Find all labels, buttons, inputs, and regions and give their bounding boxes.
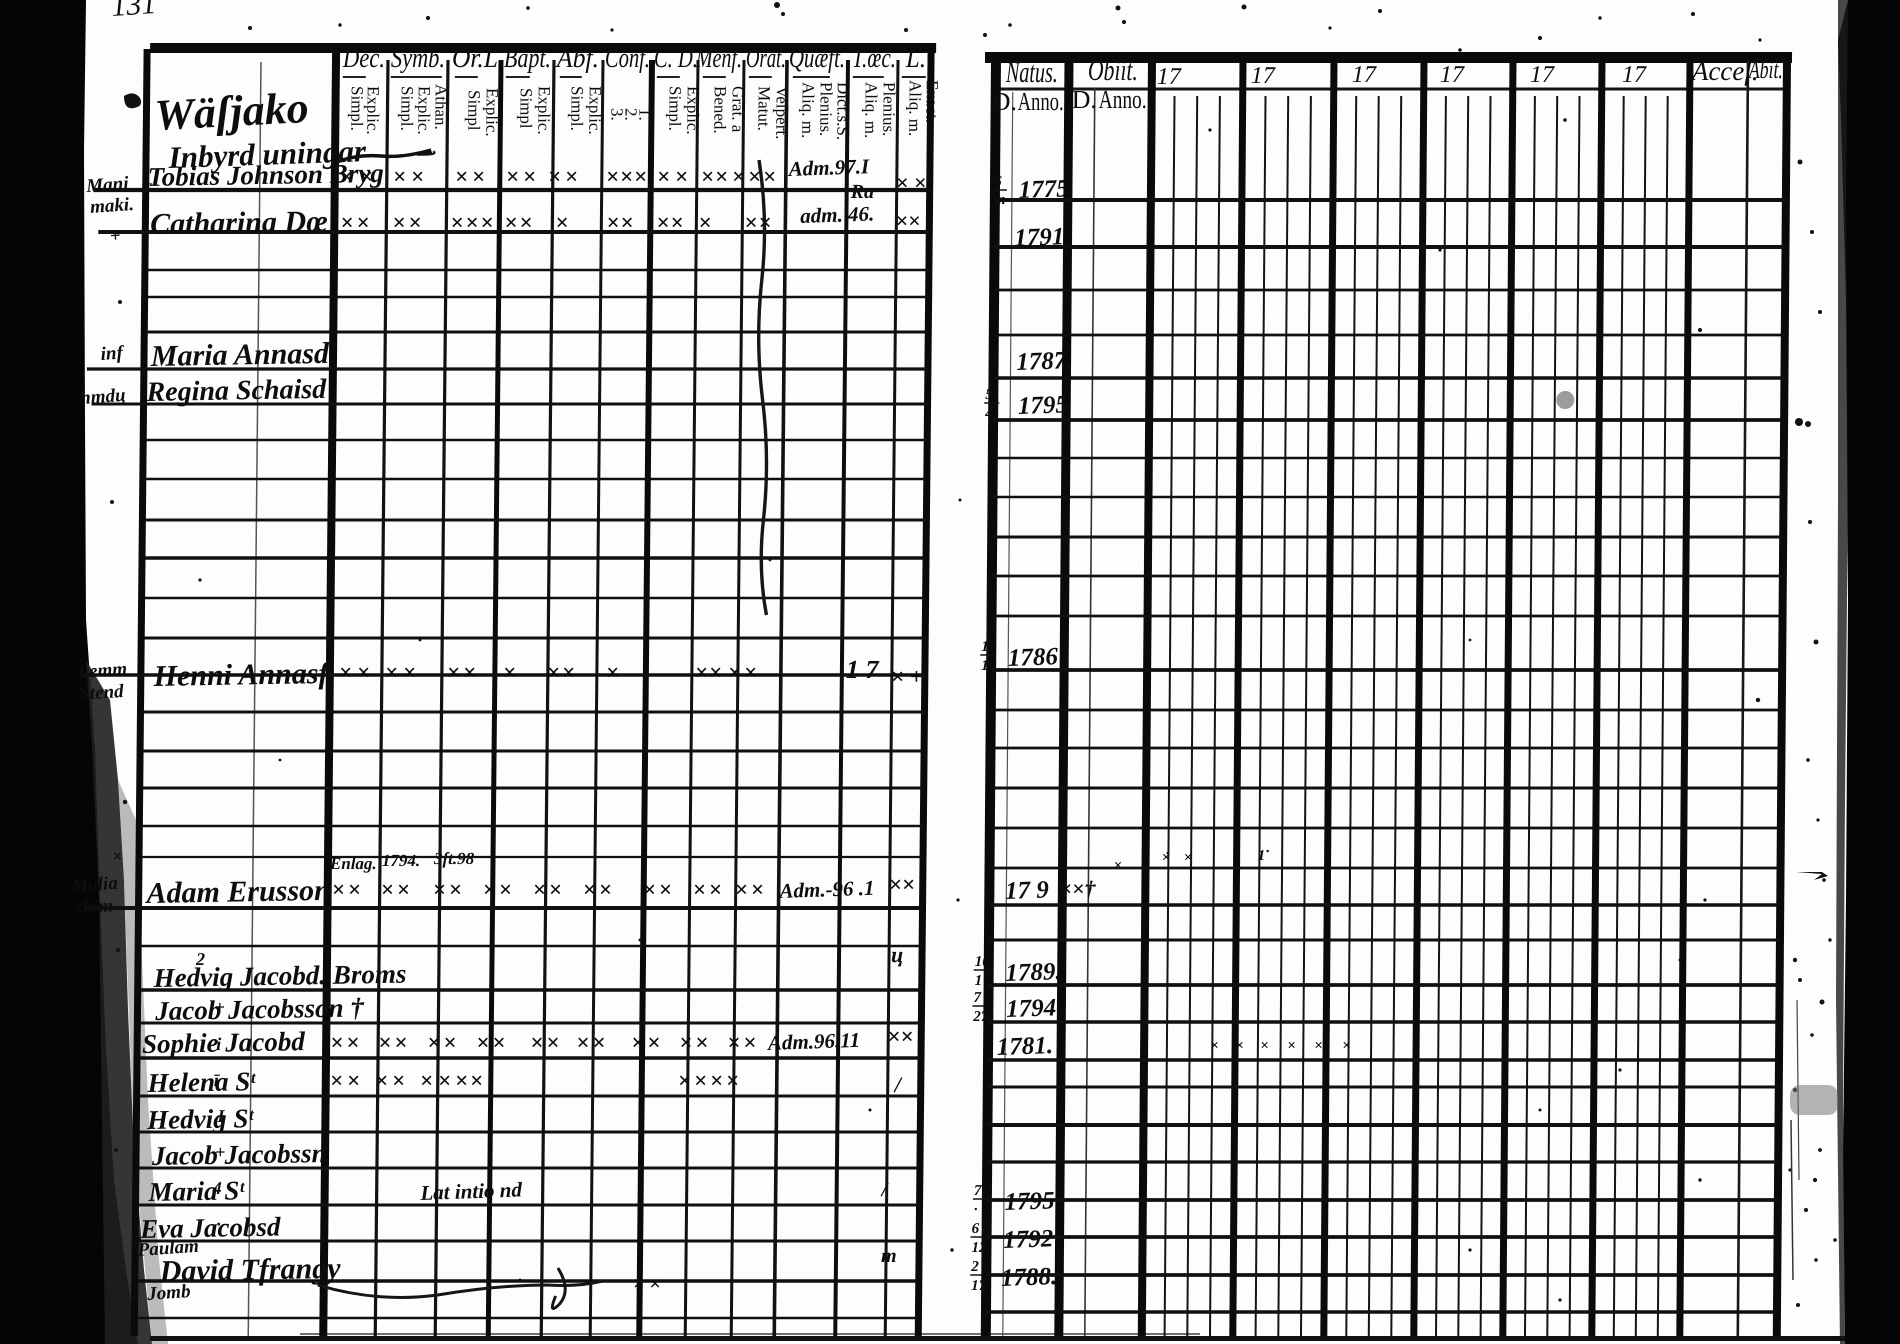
svg-text:×: ×	[503, 660, 516, 685]
svg-text:17: 17	[1352, 62, 1377, 88]
svg-text:Simpl.: Simpl.	[567, 86, 586, 131]
svg-text:+: +	[215, 1142, 225, 1162]
svg-text:1 7: 1 7	[846, 655, 880, 684]
svg-text:1788.: 1788.	[1001, 1263, 1058, 1292]
svg-text:×: ×	[726, 1068, 739, 1093]
svg-text:1794: 1794	[1006, 994, 1057, 1023]
svg-text:Aliq. m.: Aliq. m.	[905, 80, 925, 136]
svg-text:D.: D.	[1072, 85, 1098, 114]
svg-text:×: ×	[659, 877, 672, 902]
svg-text:×: ×	[592, 1030, 605, 1055]
svg-text:1789.: 1789.	[1005, 958, 1062, 987]
svg-text:17: 17	[1530, 62, 1555, 88]
svg-text:3.: 3.	[607, 108, 626, 121]
svg-text:Anno.: Anno.	[1018, 87, 1064, 116]
svg-text:maki.: maki.	[90, 194, 135, 218]
svg-text:m: m	[881, 1245, 897, 1267]
svg-text:×: ×	[381, 877, 394, 902]
svg-text:Simpl.: Simpl.	[347, 86, 366, 131]
svg-text:×: ×	[1314, 1038, 1323, 1054]
svg-text:1787.: 1787.	[1016, 347, 1073, 376]
svg-text:×: ×	[392, 210, 405, 235]
svg-text:×: ×	[375, 1068, 388, 1093]
svg-text:×: ×	[420, 1068, 433, 1093]
svg-text:Simpl: Simpl	[516, 88, 535, 129]
svg-text:Bapt.: Bapt.	[504, 43, 551, 74]
svg-text:·: ·	[1166, 846, 1170, 862]
svg-text:×: ×	[1235, 1038, 1244, 1054]
svg-text:Ra: Ra	[850, 181, 875, 203]
svg-text:×: ×	[695, 660, 708, 685]
svg-text:2: 2	[970, 1259, 979, 1275]
svg-text:T.œc.: T.œc.	[852, 43, 896, 74]
svg-text:Aliq. m.: Aliq. m.	[798, 82, 818, 138]
svg-text:Catharina Dœ: Catharina Dœ	[150, 205, 328, 241]
svg-text:Abit.: Abit.	[1747, 55, 1783, 84]
svg-text:Bened.: Bened.	[710, 86, 729, 134]
svg-text:×: ×	[447, 660, 460, 685]
svg-text:4: 4	[212, 1178, 222, 1198]
svg-text:×: ×	[392, 1068, 405, 1093]
svg-text:×: ×	[403, 660, 416, 685]
svg-text:Sophie Jacobd: Sophie Jacobd	[142, 1026, 305, 1059]
svg-text:Jomb: Jomb	[146, 1281, 191, 1305]
svg-text:×: ×	[675, 164, 688, 189]
svg-text:7: 7	[974, 1183, 982, 1199]
svg-text:Explic.: Explic.	[534, 86, 553, 135]
svg-text:Explic.: Explic.	[683, 86, 702, 135]
svg-text:×: ×	[340, 210, 353, 235]
svg-text:×: ×	[330, 1030, 343, 1055]
svg-text:×: ×	[499, 877, 512, 902]
svg-text:×: ×	[450, 210, 463, 235]
svg-text:×: ×	[751, 877, 764, 902]
svg-text:·: ·	[974, 1202, 978, 1218]
svg-text:×: ×	[506, 164, 519, 189]
svg-text:Abf.: Abf.	[555, 43, 599, 74]
svg-text:10: 10	[975, 954, 991, 970]
svg-text:Maria Annasd: Maria Annasd	[150, 337, 330, 373]
svg-text:×: ×	[606, 210, 619, 235]
svg-text:×: ×	[530, 1030, 543, 1055]
svg-text:×: ×	[701, 164, 714, 189]
svg-text:×: ×	[519, 210, 532, 235]
svg-text:×: ×	[533, 877, 546, 902]
svg-text:×: ×	[360, 164, 373, 189]
svg-text:×: ×	[735, 877, 748, 902]
svg-text:Plenius.: Plenius.	[816, 82, 836, 136]
svg-text:2: 2	[195, 949, 205, 969]
svg-text:Symb.: Symb.	[391, 43, 445, 74]
svg-text:×: ×	[394, 1030, 407, 1055]
svg-text:×: ×	[449, 877, 462, 902]
svg-text:1795: 1795	[1004, 1187, 1055, 1216]
svg-text:×: ×	[408, 210, 421, 235]
svg-text:Aliq. m.: Aliq. m.	[861, 82, 881, 138]
svg-text:6: 6	[994, 174, 1002, 190]
svg-text:×: ×	[763, 164, 776, 189]
svg-text:×: ×	[1210, 1038, 1219, 1054]
svg-text:×: ×	[411, 164, 424, 189]
svg-text:×: ×	[348, 877, 361, 902]
svg-text:Simpl.: Simpl.	[397, 86, 416, 131]
svg-text:1794.: 1794.	[382, 851, 420, 870]
svg-text:Or.L: Or.L	[452, 43, 498, 74]
svg-text:Jacob Jacobsson †: Jacob Jacobsson †	[154, 992, 364, 1026]
svg-text:×: ×	[397, 877, 410, 902]
svg-text:×: ×	[433, 877, 446, 902]
svg-text:×: ×	[732, 164, 745, 189]
svg-text:Quæft.: Quæft.	[789, 43, 845, 74]
svg-text:+: +	[143, 174, 153, 194]
svg-text:×: ×	[385, 660, 398, 685]
svg-text:1792: 1792	[1003, 1225, 1054, 1254]
svg-text:Helena Sᵗ: Helena Sᵗ	[147, 1066, 257, 1098]
svg-text:4: 4	[984, 406, 993, 422]
svg-text:inf: inf	[100, 342, 125, 365]
svg-text:×: ×	[631, 1030, 644, 1055]
svg-text:Adam Erusson: Adam Erusson	[144, 874, 330, 910]
svg-text:××: ××	[895, 208, 920, 233]
svg-text:Hedvig Sᵗ: Hedvig Sᵗ	[146, 1103, 254, 1135]
svg-text:×: ×	[492, 1030, 505, 1055]
svg-text:m: m	[994, 192, 1006, 208]
svg-text:ц: ц	[891, 942, 903, 967]
svg-text:Anno.: Anno.	[1099, 85, 1147, 114]
svg-text:131: 131	[110, 0, 157, 23]
svg-text:Orat.: Orat.	[746, 43, 786, 74]
svg-text:Regina Schaisd: Regina Schaisd	[145, 374, 327, 408]
svg-text:17: 17	[1157, 64, 1182, 90]
svg-text:1786: 1786	[1008, 643, 1059, 672]
svg-text:Paulam: Paulam	[136, 1236, 199, 1261]
svg-text:××: ××	[887, 1024, 913, 1049]
svg-text:Enlag.: Enlag.	[329, 854, 377, 873]
svg-text:Obiit.: Obiit.	[1088, 54, 1138, 87]
svg-text:×: ×	[378, 1030, 391, 1055]
svg-text:×: ×	[357, 660, 370, 685]
svg-text:Natus.: Natus.	[1005, 56, 1058, 89]
svg-text:×: ×	[547, 660, 560, 685]
svg-text:×: ×	[634, 164, 647, 189]
svg-text:Malia: Malia	[70, 873, 119, 897]
svg-text:×: ×	[476, 1030, 489, 1055]
svg-text:×: ×	[112, 846, 122, 866]
svg-text:5: 5	[985, 387, 993, 403]
svg-text:×: ×	[480, 210, 493, 235]
svg-text:×: ×	[679, 1030, 692, 1055]
svg-text:×: ×	[620, 164, 633, 189]
svg-text:×: ×	[562, 660, 575, 685]
svg-text:I: I	[216, 1106, 225, 1126]
svg-text:×: ×	[715, 164, 728, 189]
svg-text:7: 7	[973, 990, 981, 1006]
svg-text:×: ×	[599, 877, 612, 902]
svg-text:1: 1	[975, 973, 983, 989]
svg-text:×: ×	[565, 164, 578, 189]
svg-text:×: ×	[694, 1068, 707, 1093]
svg-text:Conf.: Conf.	[605, 43, 650, 74]
svg-text:×: ×	[330, 1068, 343, 1093]
svg-text:×: ×	[693, 877, 706, 902]
svg-text:×: ×	[583, 877, 596, 902]
svg-text:+: +	[214, 997, 224, 1017]
svg-text:17: 17	[1251, 63, 1276, 89]
svg-text:×: ×	[1287, 1038, 1296, 1054]
svg-text:×: ×	[463, 660, 476, 685]
svg-text:×: ×	[438, 1068, 451, 1093]
svg-text:×: ×	[347, 1068, 360, 1093]
svg-text:Adm.97.I: Adm.97.I	[786, 154, 870, 181]
svg-text:3ft.98: 3ft.98	[433, 849, 475, 868]
svg-text:×: ×	[670, 210, 683, 235]
svg-text:1781.: 1781.	[996, 1032, 1053, 1061]
svg-text:×: ×	[465, 210, 478, 235]
svg-text:Menf.: Menf.	[695, 43, 742, 74]
svg-text:×: ×	[620, 210, 633, 235]
svg-text:×: ×	[744, 210, 757, 235]
svg-text:Matut.: Matut.	[754, 86, 773, 131]
svg-text:Simpl.: Simpl.	[665, 86, 684, 131]
svg-text:×: ×	[606, 164, 619, 189]
svg-text:19: 19	[981, 658, 997, 674]
svg-text:6: 6	[972, 1221, 980, 1237]
svg-text:Adm.96.11: Adm.96.11	[766, 1028, 861, 1055]
svg-text:hmdц: hmdц	[80, 385, 127, 409]
svg-text:Dec.: Dec.	[342, 43, 385, 74]
svg-text:×: ×	[340, 164, 353, 189]
svg-text:×: ×	[546, 1030, 559, 1055]
svg-text:×: ×	[339, 660, 352, 685]
svg-text:†: †	[131, 1232, 141, 1252]
svg-text:Explic.: Explic.	[482, 88, 501, 137]
svg-text:C. D.: C. D.	[654, 43, 698, 74]
svg-text:+: +	[109, 225, 121, 247]
svg-text:×: ×	[576, 1030, 589, 1055]
svg-text:×: ×	[356, 210, 369, 235]
svg-text:×: ×	[710, 1068, 723, 1093]
svg-text:Stend: Stend	[79, 681, 125, 705]
svg-text:17: 17	[1440, 62, 1465, 88]
svg-text:1795: 1795	[1018, 391, 1069, 420]
svg-text:1791.: 1791.	[1014, 223, 1071, 252]
svg-text:×: ×	[1260, 1038, 1269, 1054]
svg-text:L.: L.	[905, 43, 926, 74]
svg-text:×: ×	[555, 210, 568, 235]
svg-text:×: ×	[743, 1030, 756, 1055]
svg-text:·: ·	[1266, 844, 1270, 860]
svg-text:Lat intio nd: Lat intio nd	[419, 1177, 523, 1205]
svg-text:×: ×	[709, 660, 722, 685]
svg-text:×: ×	[1342, 1038, 1351, 1054]
svg-text:Henni Annasf: Henni Annasf	[153, 657, 332, 693]
svg-text:Maria Sᵗ: Maria Sᵗ	[147, 1175, 245, 1207]
svg-text:××: ××	[889, 872, 915, 897]
svg-text:×: ×	[709, 877, 722, 902]
svg-text:×: ×	[698, 210, 711, 235]
svg-text:×: ×	[332, 877, 345, 902]
svg-text:Wäſjako: Wäſjako	[154, 83, 310, 140]
svg-text:×: ×	[657, 164, 670, 189]
svg-text:×: ×	[455, 1068, 468, 1093]
svg-text:×: ×	[548, 164, 561, 189]
svg-text:·: ·	[216, 1214, 221, 1234]
svg-text:1: 1	[981, 639, 989, 655]
svg-text:×: ×	[727, 1030, 740, 1055]
svg-text:adm. 46.: adm. 46.	[800, 201, 875, 228]
svg-text:Veſpert.: Veſpert.	[772, 86, 792, 139]
svg-text:Grat. a: Grat. a	[728, 86, 747, 133]
svg-text:Explic.: Explic.	[585, 86, 604, 135]
svg-text:×: ×	[470, 1068, 483, 1093]
svg-text:××†: ××†	[1059, 876, 1096, 901]
svg-text:shim: shim	[74, 895, 114, 919]
svg-text:Adm.-96 .1: Adm.-96 .1	[777, 876, 875, 903]
svg-text:1: 1	[1258, 848, 1266, 864]
svg-text:×: ×	[455, 164, 468, 189]
svg-text:17: 17	[1622, 62, 1647, 88]
svg-text:×: ×	[678, 1068, 691, 1093]
svg-text:×: ×	[728, 660, 741, 685]
svg-text:×: ×	[1184, 850, 1193, 866]
svg-text:× ×: × ×	[633, 1273, 661, 1295]
svg-text:×: ×	[744, 660, 757, 685]
svg-text:×: ×	[695, 1030, 708, 1055]
svg-text:×: ×	[647, 1030, 660, 1055]
svg-text:Plenius.: Plenius.	[879, 82, 899, 136]
svg-text:×: ×	[549, 877, 562, 902]
svg-text:Simpl: Simpl	[464, 90, 483, 131]
svg-text:17 9: 17 9	[1005, 876, 1050, 905]
svg-text:×: ×	[606, 660, 619, 685]
svg-text:×: ×	[427, 1030, 440, 1055]
svg-text:D.: D.	[992, 87, 1018, 116]
svg-text:×: ×	[656, 210, 669, 235]
svg-text:×: ×	[504, 210, 517, 235]
svg-text:27: 27	[972, 1009, 989, 1025]
svg-text:× +: × +	[891, 664, 923, 689]
svg-text:×: ×	[346, 1030, 359, 1055]
svg-text:Hedvig Jacobd. Broms: Hedvig Jacobd. Broms	[153, 959, 407, 993]
svg-text:Lemm: Lemm	[76, 659, 128, 683]
svg-text:× ×: × ×	[896, 170, 927, 195]
svg-text:×: ×	[472, 164, 485, 189]
svg-text:Jacob Jacobssn: Jacob Jacobssn	[151, 1138, 327, 1171]
svg-text:×: ×	[523, 164, 536, 189]
svg-text:×: ×	[483, 877, 496, 902]
svg-text:×: ×	[443, 1030, 456, 1055]
svg-text:×: ×	[643, 877, 656, 902]
svg-text:17: 17	[971, 1278, 987, 1294]
svg-text:×: ×	[393, 164, 406, 189]
svg-text:Mani: Mani	[85, 173, 130, 197]
svg-text:12: 12	[971, 1240, 987, 1256]
svg-text:i: i	[216, 1034, 221, 1054]
svg-text:×: ×	[1113, 858, 1122, 874]
svg-text:1775: 1775	[1018, 175, 1069, 204]
